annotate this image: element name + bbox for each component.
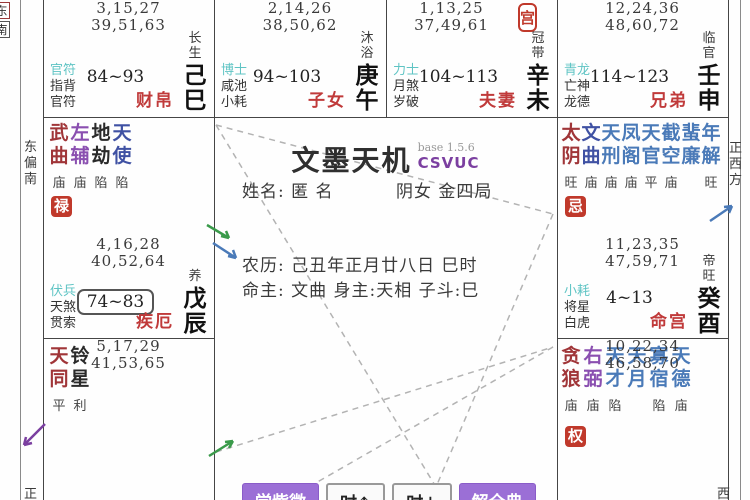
dictionary-button[interactable]: 解全典: [459, 483, 536, 500]
profile-gender-bureau: 阴女 金四局: [396, 177, 492, 202]
star-grade: 庙: [583, 395, 603, 410]
ages-line1: 2,14,26: [214, 0, 386, 17]
stem-branch-column: 沐浴 庚午: [353, 31, 381, 113]
palace-name: 兄弟: [650, 86, 688, 111]
life-stage: 帝旺: [702, 254, 716, 284]
ganzhi: 癸酉: [697, 286, 722, 336]
stem-branch-column: 养 戊辰: [181, 269, 209, 336]
life-stage: 养: [188, 269, 202, 284]
star: 文曲庙: [581, 122, 601, 187]
ganzhi: 庚午: [355, 63, 380, 113]
star-name: 左辅: [70, 122, 90, 168]
ganzhi: 辛未: [526, 63, 551, 113]
star-name: 截空: [661, 122, 681, 168]
hour-down-button[interactable]: 时↓: [392, 483, 451, 500]
ziwei-chart-app: 东 南 东偏南 正 正西方 西 宫 3,15,27 39,51,63 官符 指背…: [0, 0, 750, 500]
star-name: 天刑: [601, 122, 621, 168]
hua-quan-badge: 权: [565, 426, 586, 447]
palace-jie[interactable]: 武曲庙 左辅庙 地劫陷 天使陷 禄 4,16,28 40,52,64 伏兵 天煞…: [43, 117, 214, 338]
star-name: 地劫: [91, 122, 111, 168]
star-grade: 庙: [661, 172, 681, 187]
decade-range[interactable]: 104~113: [386, 67, 531, 87]
hua-lu-badge: 禄: [51, 196, 72, 217]
decade-text: 84~93: [87, 67, 145, 87]
star: 蜚廉: [681, 122, 701, 187]
hua-ji-badge: 忌: [565, 196, 586, 217]
star-grade: 陷: [112, 172, 132, 187]
star-grade: 利: [70, 395, 90, 410]
profile-masters: 命主: 文曲 身主:天相 子斗:巳: [242, 276, 479, 301]
god-3: 官符: [50, 95, 76, 111]
annual-ages: 10,22,34 46,58,70: [557, 338, 728, 372]
ages-line1: 5,17,29: [43, 338, 214, 355]
star-grade: 陷: [605, 395, 625, 410]
star-grade: 庙: [49, 172, 69, 187]
star: 武曲庙: [49, 122, 69, 187]
palace-xiongdi[interactable]: 12,24,36 48,60,72 青龙 亡神 龙德 114~123 兄弟 临官…: [557, 0, 728, 117]
star: 截空庙: [661, 122, 681, 187]
star-grade: [681, 172, 701, 187]
life-stage: 沐浴: [360, 31, 374, 61]
palace-zinv[interactable]: 2,14,26 38,50,62 博士 咸池 小耗 94~103 子女 沐浴 庚…: [214, 0, 386, 117]
star-grade: 平: [641, 172, 661, 187]
ganzhi: 己巳: [183, 63, 208, 113]
star: 天刑庙: [601, 122, 621, 187]
app-title-row: 文墨天机 base 1.5.6 CSVUC: [214, 139, 557, 179]
annual-ages: 5,17,29 41,53,65: [43, 338, 214, 372]
star-grade: 庙: [671, 395, 691, 410]
life-stage: 长生: [188, 31, 202, 61]
god-3: 小耗: [221, 95, 247, 111]
ages-line1: 11,23,35: [557, 236, 728, 253]
annual-ages: 12,24,36 48,60,72: [557, 0, 728, 34]
star-grade: 陷: [91, 172, 111, 187]
star-name: 蜚廉: [681, 122, 701, 168]
palace-caibo[interactable]: 3,15,27 39,51,63 官符 指背 官符 84~93 财帛 长生 己巳: [43, 0, 214, 117]
star-grade: 庙: [70, 172, 90, 187]
star: 太阴旺: [561, 122, 581, 187]
hour-up-button[interactable]: 时↑: [326, 483, 385, 500]
palace-fuqi[interactable]: 1,13,25 37,49,61 力士 月煞 岁破 104~113 夫妻 冠带 …: [386, 0, 557, 117]
god-3: 岁破: [393, 95, 419, 111]
life-stage: 临官: [702, 31, 716, 61]
stem-branch-column: 长生 己巳: [181, 31, 209, 113]
star: 天官平: [641, 122, 661, 187]
star: 地劫陷: [91, 122, 111, 187]
ages-line1: 1,13,25: [386, 0, 517, 17]
star-grade: 庙: [581, 172, 601, 187]
palace-name: 命宫: [650, 307, 688, 332]
palace-right-bottom[interactable]: 贪狼庙 右弼庙 天才陷 天月 寡宿陷 天德庙 权 10,22,34 46,58,…: [557, 338, 728, 500]
star: 天使陷: [112, 122, 132, 187]
star-grade: 庙: [601, 172, 621, 187]
star-name: 凤阁: [621, 122, 641, 168]
star: 年解旺: [701, 122, 721, 187]
profile-name: 姓名: 匿 名: [242, 177, 334, 202]
ages-line1: 4,16,28: [43, 236, 214, 253]
annual-ages: 2,14,26 38,50,62: [214, 0, 386, 34]
ages-line2: 40,52,64: [43, 253, 214, 270]
annual-ages: 3,15,27 39,51,63: [43, 0, 214, 34]
star-grade: 庙: [561, 395, 581, 410]
god-3: 白虎: [564, 316, 590, 332]
stem-branch-column: 临官 壬申: [695, 31, 723, 113]
decade-text: 94~103: [253, 67, 321, 87]
app-version-base: base 1.5.6: [418, 141, 480, 154]
decade-range[interactable]: 94~103: [214, 67, 360, 87]
annual-ages: 1,13,25 37,49,61: [386, 0, 517, 34]
palace-name: 夫妻: [479, 86, 517, 111]
star: 凤阁庙: [621, 122, 641, 187]
decade-text: 4~13: [606, 288, 653, 308]
star-name: 天使: [112, 122, 132, 168]
decade-text: 104~113: [419, 67, 498, 87]
palace-name: 疾厄: [136, 307, 174, 332]
app-version-block: base 1.5.6 CSVUC: [418, 141, 480, 172]
star-list: 太阴旺 文曲庙 天刑庙 凤阁庙 天官平 截空庙 蜚廉 年解旺: [561, 122, 721, 187]
god-3: 龙德: [564, 95, 590, 111]
star-name: 天官: [641, 122, 661, 168]
star-list: 武曲庙 左辅庙 地劫陷 天使陷: [49, 122, 132, 187]
center-info-panel: 文墨天机 base 1.5.6 CSVUC 姓名: 匿 名 阴女 金四局 农历:…: [214, 117, 557, 500]
palace-name: 财帛: [136, 86, 174, 111]
palace-name: 子女: [308, 86, 346, 111]
ages-line2: 46,58,70: [557, 355, 728, 372]
app-title: 文墨天机: [292, 139, 412, 179]
ages-line1: 12,24,36: [557, 0, 728, 17]
stem-branch-column: 冠带 辛未: [524, 31, 552, 113]
profile-lunar-date: 农历: 己丑年正月廿八日 巳时: [242, 251, 478, 276]
ganzhi: 戊辰: [183, 286, 208, 336]
star-name: 武曲: [49, 122, 69, 168]
life-stage: 冠带: [531, 31, 545, 61]
learn-ziwei-button[interactable]: 学紫微: [242, 483, 319, 500]
ganzhi: 壬申: [697, 63, 722, 113]
star-name: 文曲: [581, 122, 601, 168]
star-grade: 旺: [701, 172, 721, 187]
decade-range[interactable]: 4~13: [557, 288, 702, 308]
star-name: 太阴: [561, 122, 581, 168]
bottom-toolbar: 学紫微 时↑ 时↓ 解全典: [242, 483, 536, 500]
palace-left-bottom[interactable]: 天同平 铃星利 5,17,29 41,53,65: [43, 338, 214, 500]
star-grade: 旺: [561, 172, 581, 187]
ages-line1: 3,15,27: [43, 0, 214, 17]
app-edition: CSVUC: [418, 154, 480, 172]
decade-text: 114~123: [590, 67, 669, 87]
star-grade: 庙: [621, 172, 641, 187]
star-name: 年解: [701, 122, 721, 168]
stem-branch-column: 帝旺 癸酉: [695, 254, 723, 336]
star-grade: 陷: [649, 395, 669, 410]
decade-range[interactable]: 114~123: [557, 67, 702, 87]
annual-ages: 4,16,28 40,52,64: [43, 236, 214, 270]
palace-ming[interactable]: 太阴旺 文曲庙 天刑庙 凤阁庙 天官平 截空庙 蜚廉 年解旺 忌 11,23,3…: [557, 117, 728, 338]
ages-line2: 37,49,61: [386, 17, 517, 34]
star-grade: [627, 395, 647, 410]
ages-line1: 10,22,34: [557, 338, 728, 355]
star: 左辅庙: [70, 122, 90, 187]
ages-line2: 41,53,65: [43, 355, 214, 372]
decade-range[interactable]: 84~93: [43, 67, 188, 87]
god-3: 贯索: [50, 316, 76, 332]
star-grade: 平: [49, 395, 69, 410]
